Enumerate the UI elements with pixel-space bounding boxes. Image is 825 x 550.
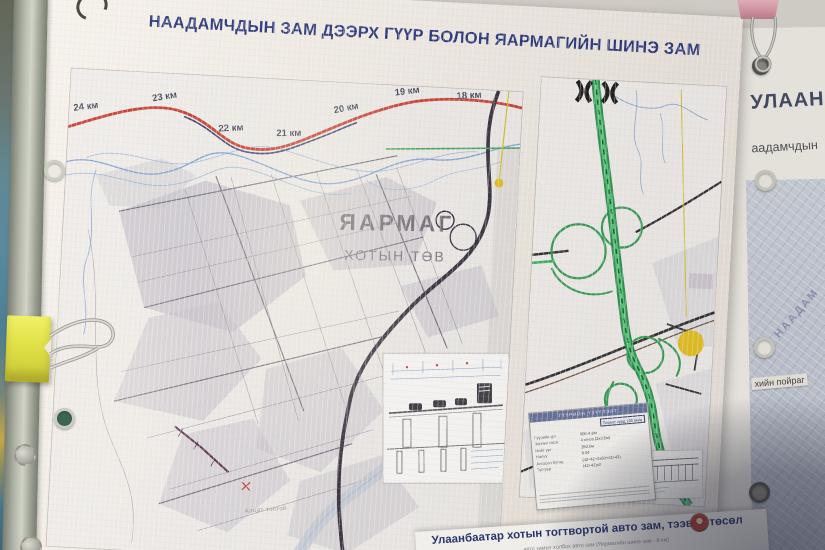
pink-clip-wire-handle [744, 15, 784, 75]
grommet-eyelet [44, 160, 65, 181]
background-map-note: хийн пойраг [751, 373, 808, 390]
yellow-binder-clip [5, 315, 51, 382]
background-map-label: НААДАМ [772, 286, 821, 340]
grommet-eyelet [754, 337, 775, 358]
frame-knob [14, 444, 36, 466]
banner-title: НААДАМЧДЫН ЗАМ ДЭЭРХ ГҮҮР БОЛОН ЯАРМАГИЙ… [141, 12, 707, 61]
grommet-eyelet [749, 482, 770, 503]
photo-of-road-project-banner: УЛААНБ аадамчдын НААДАМ хийн пойраг НААД… [0, 0, 825, 550]
bridge-cross-section-inset [383, 353, 509, 483]
legend-note-lines [539, 484, 650, 505]
legend-highlight: Төсөлт хурд 100 км/ц [599, 415, 645, 427]
overview-map-panel: 24 км 23 км 22 км 21 км 20 км 19 км 18 к… [46, 68, 522, 550]
background-poster-subtitle: аадамчдын [751, 138, 818, 155]
background-poster-title: УЛААНБ [750, 87, 825, 115]
overview-map-drawing [46, 68, 522, 550]
interchange-plan-panel: ГҮҮРИЙН ҮЗҮҮЛЭЛТ Төсөлт хурд 100 км/ц Гү… [520, 77, 727, 506]
grommet-eyelet [54, 408, 75, 429]
specs-legend-table: ГҮҮРИЙН ҮЗҮҮЛЭЛТ Төсөлт хурд 100 км/ц Гү… [528, 402, 656, 510]
km-marker-label: 18 км [456, 90, 482, 102]
district-sublabel: ХОТЫН ТӨВ [312, 246, 478, 265]
km-marker-label: 21 км [276, 128, 301, 139]
km-marker-label: 22 км [218, 122, 244, 134]
yellow-clip-wire-handle [46, 312, 126, 376]
legend-rows: Гүүрийн урт800.4 у/м Зорчих хэсэг4 эгнээ… [534, 426, 649, 474]
district-label: ЯАРМАГ [302, 208, 492, 238]
grommet-eyelet [755, 170, 776, 191]
banner: НААДАМЧДЫН ЗАМ ДЭЭРХ ГҮҮР БОЛОН ЯАРМАГИЙ… [0, 0, 743, 550]
city-emblem-icon [690, 514, 708, 532]
